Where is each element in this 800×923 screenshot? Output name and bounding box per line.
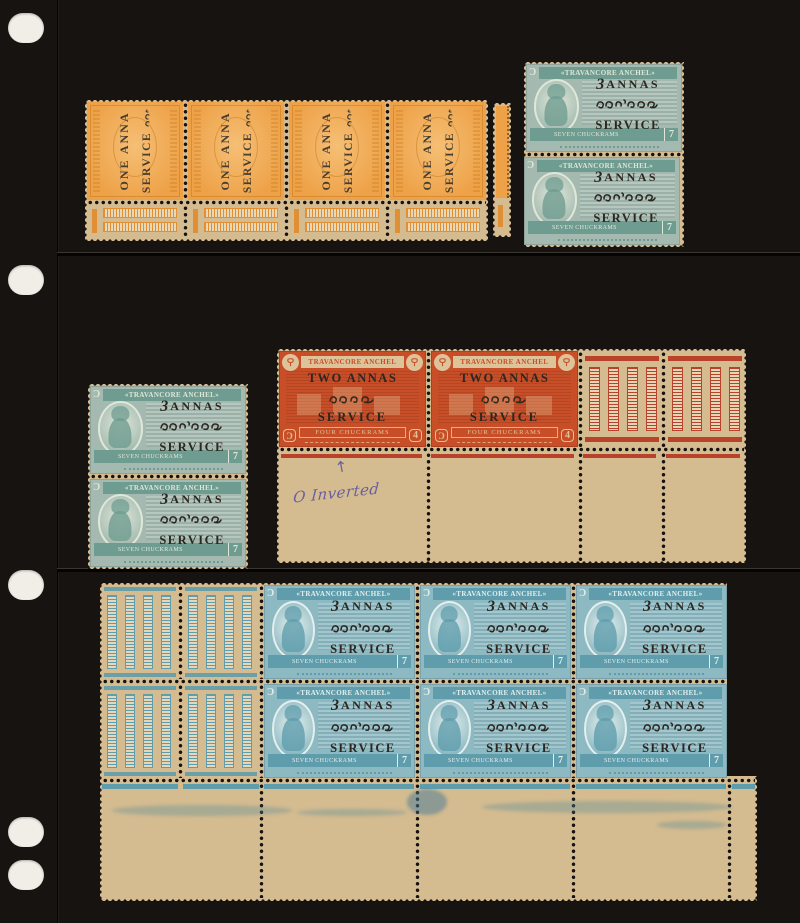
- selvage-bar: [185, 772, 257, 776]
- binder-hole: [8, 860, 44, 890]
- margin-color-bar: [264, 784, 414, 789]
- overprint-value: 3ANNAS: [468, 597, 569, 615]
- stamp-one-anna: ONE ANNA SERVICE: [390, 102, 486, 200]
- malayalam-overprint-script: [328, 392, 378, 405]
- selvage-striped-column: [143, 694, 153, 768]
- corner-numeral: Ɔ: [529, 67, 536, 78]
- ink-smudge: [112, 805, 292, 816]
- stamp-side-ornament: [170, 110, 177, 192]
- stamp-seven-chuckrams: Ɔ «TRAVANCORE ANCHEL» SEVEN CHUCKRAMS 7 …: [90, 386, 246, 474]
- malayalam-overprint-script: [345, 109, 353, 127]
- selvage-slot: [102, 585, 178, 679]
- overprint-value: 3ANNAS: [468, 696, 569, 714]
- stamp-slot: Ɔ «TRAVANCORE ANCHEL» SEVEN CHUCKRAMS 7 …: [90, 479, 246, 567]
- overprint-value: 3ANNAS: [624, 696, 725, 714]
- malayalam-overprint-script: [486, 621, 552, 634]
- service-overprint: ONE ANNA SERVICE: [117, 103, 153, 199]
- overprint-value: ONE ANNA: [218, 103, 233, 199]
- overprint-value: ONE ANNA: [420, 103, 435, 199]
- margin-color-bar: [431, 454, 574, 458]
- torn-stamp-remnant: [493, 103, 511, 237]
- selvage-striped-panel: [305, 222, 379, 232]
- selvage-striped-column: [691, 367, 702, 431]
- maharaja-portrait: [98, 401, 143, 456]
- overprint-service-line: SERVICE: [343, 103, 355, 199]
- stamp-slot: ONE ANNA SERVICE: [188, 102, 284, 200]
- stamp-slot: TRAVANCORE ANCHEL Ɔ FOUR CHUCKRAMS 4 TWO…: [279, 351, 426, 447]
- selvage-cell: [289, 205, 385, 239]
- selvage-striped-column: [672, 367, 683, 431]
- selvage-bar: [185, 673, 257, 677]
- margin-color-bar: [420, 784, 570, 789]
- ink-smudge: [297, 809, 407, 816]
- overprint-value: ONE ANNA: [319, 103, 334, 199]
- stamp-seven-chuckrams: Ɔ «TRAVANCORE ANCHEL» SEVEN CHUCKRAMS 7 …: [264, 684, 415, 778]
- overprint-service: SERVICE: [291, 410, 415, 425]
- overprint-service: SERVICE: [141, 132, 153, 193]
- selvage-bar: [193, 209, 198, 233]
- perforation: [578, 452, 583, 561]
- selvage-striped-column: [188, 595, 198, 669]
- margin-color-bar: [281, 454, 422, 458]
- remnant-body: [495, 105, 509, 235]
- overprint-service: SERVICE: [443, 410, 567, 425]
- stamp-side-ornament: [194, 110, 201, 192]
- stamp-slot: Ɔ «TRAVANCORE ANCHEL» SEVEN CHUCKRAMS 7 …: [264, 585, 415, 679]
- perforation: [727, 783, 732, 898]
- stamp-slot: Ɔ «TRAVANCORE ANCHEL» SEVEN CHUCKRAMS 7 …: [526, 64, 682, 152]
- selvage-bar: [668, 356, 742, 361]
- selvage-striped-column: [107, 694, 117, 768]
- stamp-seven-chuckrams: Ɔ «TRAVANCORE ANCHEL» SEVEN CHUCKRAMS 7 …: [264, 585, 415, 679]
- perforation: [426, 452, 431, 561]
- overprint-service: SERVICE: [574, 211, 679, 226]
- malayalam-overprint-script: [593, 190, 659, 203]
- selvage-striped-column: [242, 694, 252, 768]
- selvage-bar: [294, 209, 299, 233]
- selvage-bar: [185, 686, 257, 690]
- corner-numeral: Ɔ: [93, 482, 100, 493]
- maharaja-portrait: [534, 79, 579, 134]
- stamp-one-anna: ONE ANNA SERVICE: [188, 102, 284, 200]
- stamp-slot: Ɔ «TRAVANCORE ANCHEL» SEVEN CHUCKRAMS 7 …: [420, 585, 571, 679]
- selvage-striped-column: [161, 694, 171, 768]
- corner-numeral: Ɔ: [267, 687, 274, 698]
- selvage-striped-column: [242, 595, 252, 669]
- selvage-slot: [183, 585, 259, 679]
- selvage-striped-panel: [204, 222, 278, 232]
- selvage-striped-column: [143, 595, 153, 669]
- three-annas-block-of-six: Ɔ «TRAVANCORE ANCHEL» SEVEN CHUCKRAMS 7 …: [100, 583, 757, 901]
- service-overprint: 3ANNAS SERVICE: [576, 64, 681, 152]
- binder-hole: [8, 13, 44, 43]
- selvage-slot: [87, 205, 183, 239]
- selvage-striped-column: [161, 595, 171, 669]
- overprint-value: ONE ANNA: [117, 103, 132, 199]
- corner-numeral: Ɔ: [423, 588, 430, 599]
- selvage-bar: [104, 673, 176, 677]
- stamp-four-chuckrams: TRAVANCORE ANCHEL Ɔ FOUR CHUCKRAMS 4 TWO…: [431, 351, 578, 447]
- corner-numeral: Ɔ: [527, 160, 534, 171]
- corner-numeral: Ɔ: [423, 687, 430, 698]
- overprint-service: SERVICE: [140, 533, 245, 548]
- overprint-value: 3ANNAS: [312, 597, 413, 615]
- selvage-striped-column: [206, 694, 216, 768]
- sheet-margin: ↑ O Inverted: [279, 452, 744, 561]
- overprint-service-line: SERVICE: [141, 103, 153, 199]
- selvage-striped-column: [589, 367, 600, 431]
- perforation: [661, 452, 666, 561]
- malayalam-overprint-script: [244, 109, 252, 127]
- stamp-slot: Ɔ «TRAVANCORE ANCHEL» SEVEN CHUCKRAMS 7 …: [524, 157, 680, 245]
- selvage-panel: [183, 585, 259, 679]
- overprint-value: TWO ANNAS: [291, 371, 415, 386]
- selvage-slot: [188, 205, 284, 239]
- malayalam-overprint-script: [486, 720, 552, 733]
- malayalam-overprint-script: [595, 97, 661, 110]
- corner-numeral: Ɔ: [93, 389, 100, 400]
- overprint-value: 3ANNAS: [574, 168, 679, 186]
- selvage-striped-panel: [406, 222, 480, 232]
- selvage-slot: [666, 351, 744, 447]
- binder-hole: [8, 817, 44, 847]
- two-annas-block: TRAVANCORE ANCHEL Ɔ FOUR CHUCKRAMS 4 TWO…: [277, 349, 746, 563]
- service-overprint: TWO ANNAS SERVICE: [291, 351, 415, 447]
- overprint-service: SERVICE: [624, 741, 725, 756]
- maharaja-portrait: [272, 601, 316, 659]
- selvage-slot: [183, 684, 259, 778]
- selvage-striped-panel: [305, 208, 379, 218]
- selvage-striped-column: [224, 595, 234, 669]
- stamp-side-ornament: [473, 110, 480, 192]
- margin-color-bar: [183, 784, 259, 789]
- selvage-slot: [390, 205, 486, 239]
- maharaja-portrait: [428, 601, 472, 659]
- selvage-bar: [395, 209, 400, 233]
- selvage-striped-column: [608, 367, 619, 431]
- missing-paper-corner: [727, 581, 759, 776]
- selvage-panel: [102, 684, 178, 778]
- corner-numeral: Ɔ: [267, 588, 274, 599]
- malayalam-overprint-script: [642, 621, 708, 634]
- stamp-slot: Ɔ «TRAVANCORE ANCHEL» SEVEN CHUCKRAMS 7 …: [576, 585, 727, 679]
- stamp-seven-chuckrams: Ɔ «TRAVANCORE ANCHEL» SEVEN CHUCKRAMS 7 …: [420, 684, 571, 778]
- stamp-side-ornament: [271, 110, 278, 192]
- overprint-value: 3ANNAS: [624, 597, 725, 615]
- overprint-service: SERVICE: [140, 440, 245, 455]
- overprint-service: SERVICE: [576, 118, 681, 133]
- selvage-bar: [585, 356, 659, 361]
- selvage-bar: [104, 587, 176, 591]
- maharaja-portrait: [532, 172, 577, 227]
- stamp-slot: ONE ANNA SERVICE: [87, 102, 183, 200]
- service-overprint: ONE ANNA SERVICE: [218, 103, 254, 199]
- ink-smudge: [482, 801, 732, 813]
- album-page: ONE ANNA SERVICE ONE ANNA SERVICE: [0, 0, 800, 923]
- stamp-slot: TRAVANCORE ANCHEL Ɔ FOUR CHUCKRAMS 4 TWO…: [431, 351, 578, 447]
- selvage-slot: [289, 205, 385, 239]
- selvage-striped-column: [188, 694, 198, 768]
- ink-smudge: [407, 789, 447, 815]
- three-annas-pair-top-right: Ɔ «TRAVANCORE ANCHEL» SEVEN CHUCKRAMS 7 …: [524, 62, 684, 247]
- stamp-side-ornament: [372, 110, 379, 192]
- annotation-arrow: ↑: [334, 457, 350, 477]
- malayalam-overprint-script: [159, 512, 225, 525]
- selvage-cell: [87, 205, 183, 239]
- stamp-slot: Ɔ «TRAVANCORE ANCHEL» SEVEN CHUCKRAMS 7 …: [576, 684, 727, 778]
- ink-smudge: [657, 821, 727, 829]
- selvage-striped-panel: [103, 222, 177, 232]
- maharaja-portrait: [428, 700, 472, 758]
- service-overprint: ONE ANNA SERVICE: [420, 103, 456, 199]
- malayalam-overprint-script: [480, 392, 530, 405]
- overprint-service: SERVICE: [468, 741, 569, 756]
- selvage-striped-column: [710, 367, 721, 431]
- selvage-striped-column: [125, 595, 135, 669]
- overprint-service: SERVICE: [242, 132, 254, 193]
- service-overprint: 3ANNAS SERVICE: [624, 585, 725, 679]
- remnant-selvage-bar: [498, 205, 503, 227]
- service-overprint: 3ANNAS SERVICE: [140, 479, 245, 567]
- stamp-slot: Ɔ «TRAVANCORE ANCHEL» SEVEN CHUCKRAMS 7 …: [264, 684, 415, 778]
- selvage-striped-panel: [204, 208, 278, 218]
- overprint-value: 3ANNAS: [576, 75, 681, 93]
- service-overprint: 3ANNAS SERVICE: [468, 684, 569, 778]
- stamp-seven-chuckrams: Ɔ «TRAVANCORE ANCHEL» SEVEN CHUCKRAMS 7 …: [90, 479, 246, 567]
- service-overprint: 3ANNAS SERVICE: [312, 684, 413, 778]
- stamp-slot: Ɔ «TRAVANCORE ANCHEL» SEVEN CHUCKRAMS 7 …: [420, 684, 571, 778]
- stamp-four-chuckrams: TRAVANCORE ANCHEL Ɔ FOUR CHUCKRAMS 4 TWO…: [279, 351, 426, 447]
- stamp-seven-chuckrams: Ɔ «TRAVANCORE ANCHEL» SEVEN CHUCKRAMS 7 …: [420, 585, 571, 679]
- overprint-value: 3ANNAS: [140, 490, 245, 508]
- selvage-bar: [585, 437, 659, 442]
- overprint-value: 3ANNAS: [312, 696, 413, 714]
- binder-hole: [8, 265, 44, 295]
- maharaja-portrait: [98, 494, 143, 549]
- selvage-striped-column: [646, 367, 657, 431]
- selvage-striped-column: [206, 595, 216, 669]
- service-overprint: 3ANNAS SERVICE: [140, 386, 245, 474]
- selvage-striped-panel: [406, 208, 480, 218]
- selvage-bar: [185, 587, 257, 591]
- stamp-slot: ONE ANNA SERVICE: [390, 102, 486, 200]
- stamp-slot: ONE ANNA SERVICE: [289, 102, 385, 200]
- margin-color-bar: [666, 454, 740, 458]
- service-overprint: 3ANNAS SERVICE: [624, 684, 725, 778]
- margin-color-bar: [576, 784, 726, 789]
- service-overprint: 3ANNAS SERVICE: [468, 585, 569, 679]
- selvage-striped-panel: [103, 208, 177, 218]
- overprint-service: SERVICE: [312, 741, 413, 756]
- annotation-text: O Inverted: [293, 479, 380, 506]
- maharaja-portrait: [272, 700, 316, 758]
- overprint-service-line: SERVICE: [242, 103, 254, 199]
- stamp-side-ornament: [295, 110, 302, 192]
- selvage-bar: [104, 686, 176, 690]
- stamp-seven-chuckrams: Ɔ «TRAVANCORE ANCHEL» SEVEN CHUCKRAMS 7 …: [526, 64, 682, 152]
- selvage-slot: [583, 351, 661, 447]
- selvage-bar: [668, 437, 742, 442]
- selvage-cell: [390, 205, 486, 239]
- selvage-panel: [183, 684, 259, 778]
- overprint-service: SERVICE: [343, 132, 355, 193]
- selvage-cell: [188, 205, 284, 239]
- overprint-service: SERVICE: [312, 642, 413, 657]
- remnant-stamp-strip: [496, 106, 509, 198]
- malayalam-overprint-script: [642, 720, 708, 733]
- selvage-panel: [666, 351, 744, 447]
- corner-numeral: Ɔ: [579, 588, 586, 599]
- binder-edge: [57, 0, 58, 923]
- malayalam-overprint-script: [159, 419, 225, 432]
- stamp-slot: Ɔ «TRAVANCORE ANCHEL» SEVEN CHUCKRAMS 7 …: [90, 386, 246, 474]
- margin-color-bar: [583, 454, 656, 458]
- selvage-bar: [92, 209, 97, 233]
- perforation: [259, 783, 264, 898]
- malayalam-overprint-script: [446, 109, 454, 127]
- selvage-striped-column: [729, 367, 740, 431]
- selvage-striped-column: [107, 595, 117, 669]
- overprint-value: TWO ANNAS: [443, 371, 567, 386]
- service-overprint: 3ANNAS SERVICE: [312, 585, 413, 679]
- sheet-margin: [102, 783, 755, 898]
- malayalam-overprint-script: [330, 720, 396, 733]
- stamp-one-anna: ONE ANNA SERVICE: [87, 102, 183, 200]
- maharaja-portrait: [584, 700, 628, 758]
- selvage-striped-column: [627, 367, 638, 431]
- malayalam-overprint-script: [143, 109, 151, 127]
- service-overprint: 3ANNAS SERVICE: [574, 157, 679, 245]
- selvage-panel: [583, 351, 661, 447]
- overprint-value: 3ANNAS: [140, 397, 245, 415]
- selvage-panel: [102, 585, 178, 679]
- margin-color-bar: [732, 784, 755, 789]
- selvage-striped-column: [224, 694, 234, 768]
- stamp-seven-chuckrams: Ɔ «TRAVANCORE ANCHEL» SEVEN CHUCKRAMS 7 …: [576, 585, 727, 679]
- service-overprint: ONE ANNA SERVICE: [319, 103, 355, 199]
- page-seam: [57, 252, 800, 256]
- selvage-striped-column: [125, 694, 135, 768]
- malayalam-overprint-script: [330, 621, 396, 634]
- selvage-slot: [102, 684, 178, 778]
- overprint-service: SERVICE: [444, 132, 456, 193]
- service-overprint: TWO ANNAS SERVICE: [443, 351, 567, 447]
- stamp-side-ornament: [93, 110, 100, 192]
- selvage-bar: [104, 772, 176, 776]
- stamp-seven-chuckrams: Ɔ «TRAVANCORE ANCHEL» SEVEN CHUCKRAMS 7 …: [576, 684, 727, 778]
- margin-color-bar: [102, 784, 178, 789]
- overprint-service-line: SERVICE: [444, 103, 456, 199]
- three-annas-pair-left: Ɔ «TRAVANCORE ANCHEL» SEVEN CHUCKRAMS 7 …: [88, 384, 248, 569]
- one-anna-strip-block: ONE ANNA SERVICE ONE ANNA SERVICE: [85, 100, 488, 241]
- stamp-one-anna: ONE ANNA SERVICE: [289, 102, 385, 200]
- binder-hole: [8, 570, 44, 600]
- overprint-service: SERVICE: [624, 642, 725, 657]
- corner-numeral: Ɔ: [579, 687, 586, 698]
- overprint-service: SERVICE: [468, 642, 569, 657]
- maharaja-portrait: [584, 601, 628, 659]
- stamp-seven-chuckrams: Ɔ «TRAVANCORE ANCHEL» SEVEN CHUCKRAMS 7 …: [524, 157, 680, 245]
- stamp-side-ornament: [396, 110, 403, 192]
